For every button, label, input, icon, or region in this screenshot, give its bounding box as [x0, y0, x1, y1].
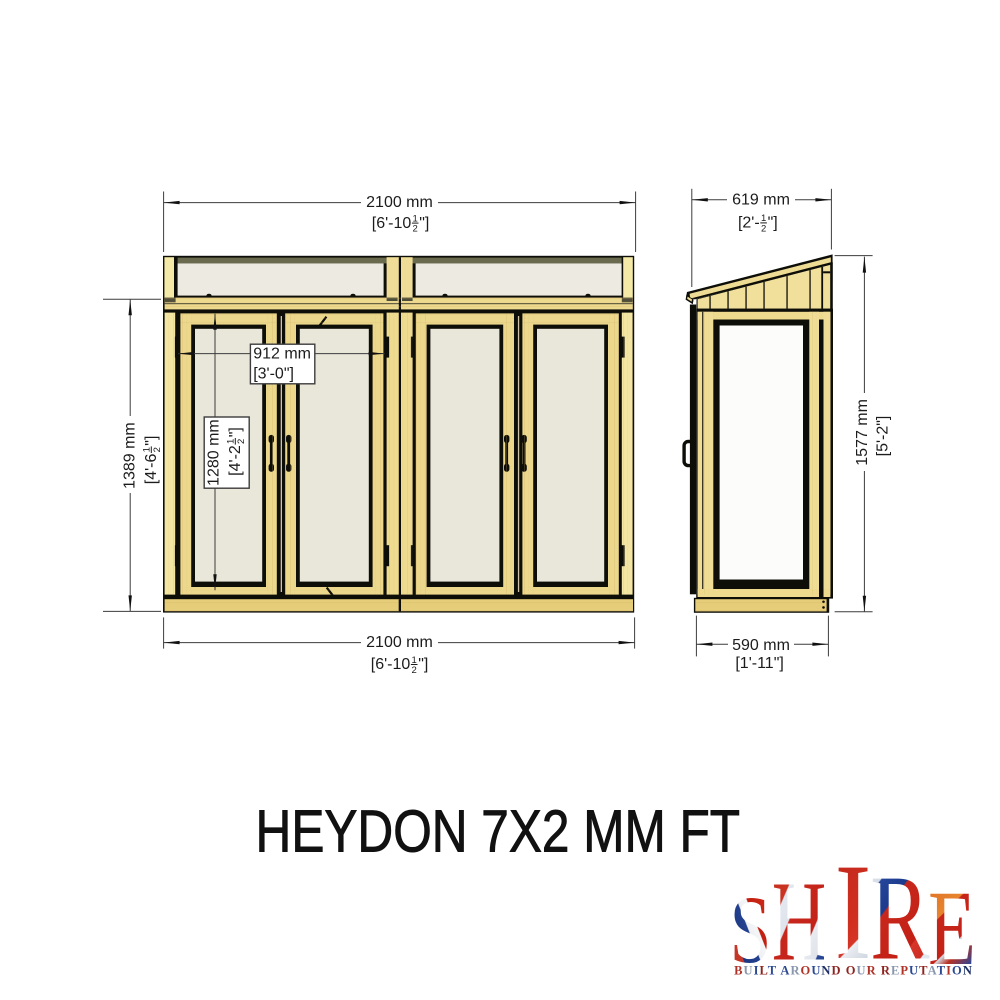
svg-text:[4'-6: [4'-6 [143, 453, 160, 484]
svg-text:[6'-10: [6'-10 [372, 215, 412, 232]
svg-text:912 mm: 912 mm [253, 346, 311, 363]
svg-text:[6'-10: [6'-10 [371, 656, 411, 673]
svg-text:2: 2 [152, 447, 163, 452]
svg-text:1389 mm: 1389 mm [122, 422, 139, 489]
svg-text:[3'-0"]: [3'-0"] [253, 366, 294, 383]
svg-text:2: 2 [236, 439, 247, 444]
svg-text:2100 mm: 2100 mm [366, 194, 433, 211]
svg-text:2100 mm: 2100 mm [366, 634, 433, 651]
svg-text:"]: "] [418, 656, 428, 673]
svg-text:1280 mm: 1280 mm [205, 419, 222, 486]
svg-text:"]: "] [143, 436, 160, 446]
svg-text:[5'-2"]: [5'-2"] [875, 416, 892, 457]
svg-text:HEYDON 7X2 MM FT: HEYDON 7X2 MM FT [256, 798, 740, 864]
svg-text:"]: "] [419, 215, 429, 232]
svg-text:BUILT AROUND OUR REPUTATION: BUILT AROUND OUR REPUTATION [734, 964, 973, 978]
svg-text:619 mm: 619 mm [732, 192, 790, 209]
svg-text:[1'-11"]: [1'-11"] [735, 655, 783, 672]
svg-text:1577 mm: 1577 mm [854, 399, 871, 466]
svg-text:[4'-2: [4'-2 [227, 445, 244, 476]
svg-text:"]: "] [768, 215, 778, 232]
svg-text:"]: "] [227, 427, 244, 437]
svg-text:[2'-: [2'- [738, 215, 760, 232]
svg-text:590 mm: 590 mm [732, 637, 790, 654]
svg-text:2: 2 [761, 223, 766, 234]
svg-text:2: 2 [413, 224, 418, 235]
svg-text:2: 2 [412, 665, 417, 676]
